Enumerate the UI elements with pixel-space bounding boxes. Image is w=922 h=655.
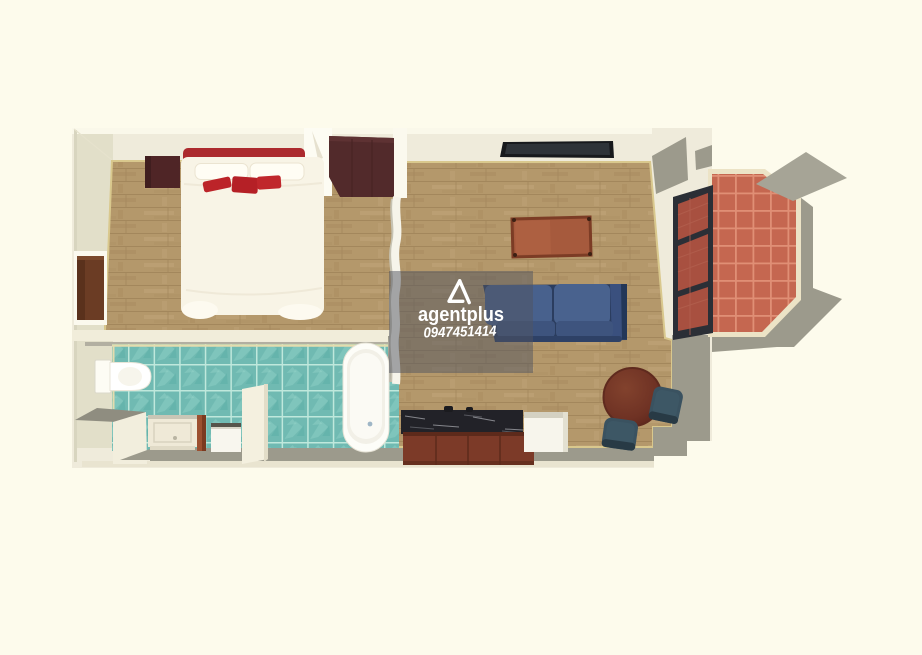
svg-text:0947451414: 0947451414 xyxy=(423,324,496,342)
